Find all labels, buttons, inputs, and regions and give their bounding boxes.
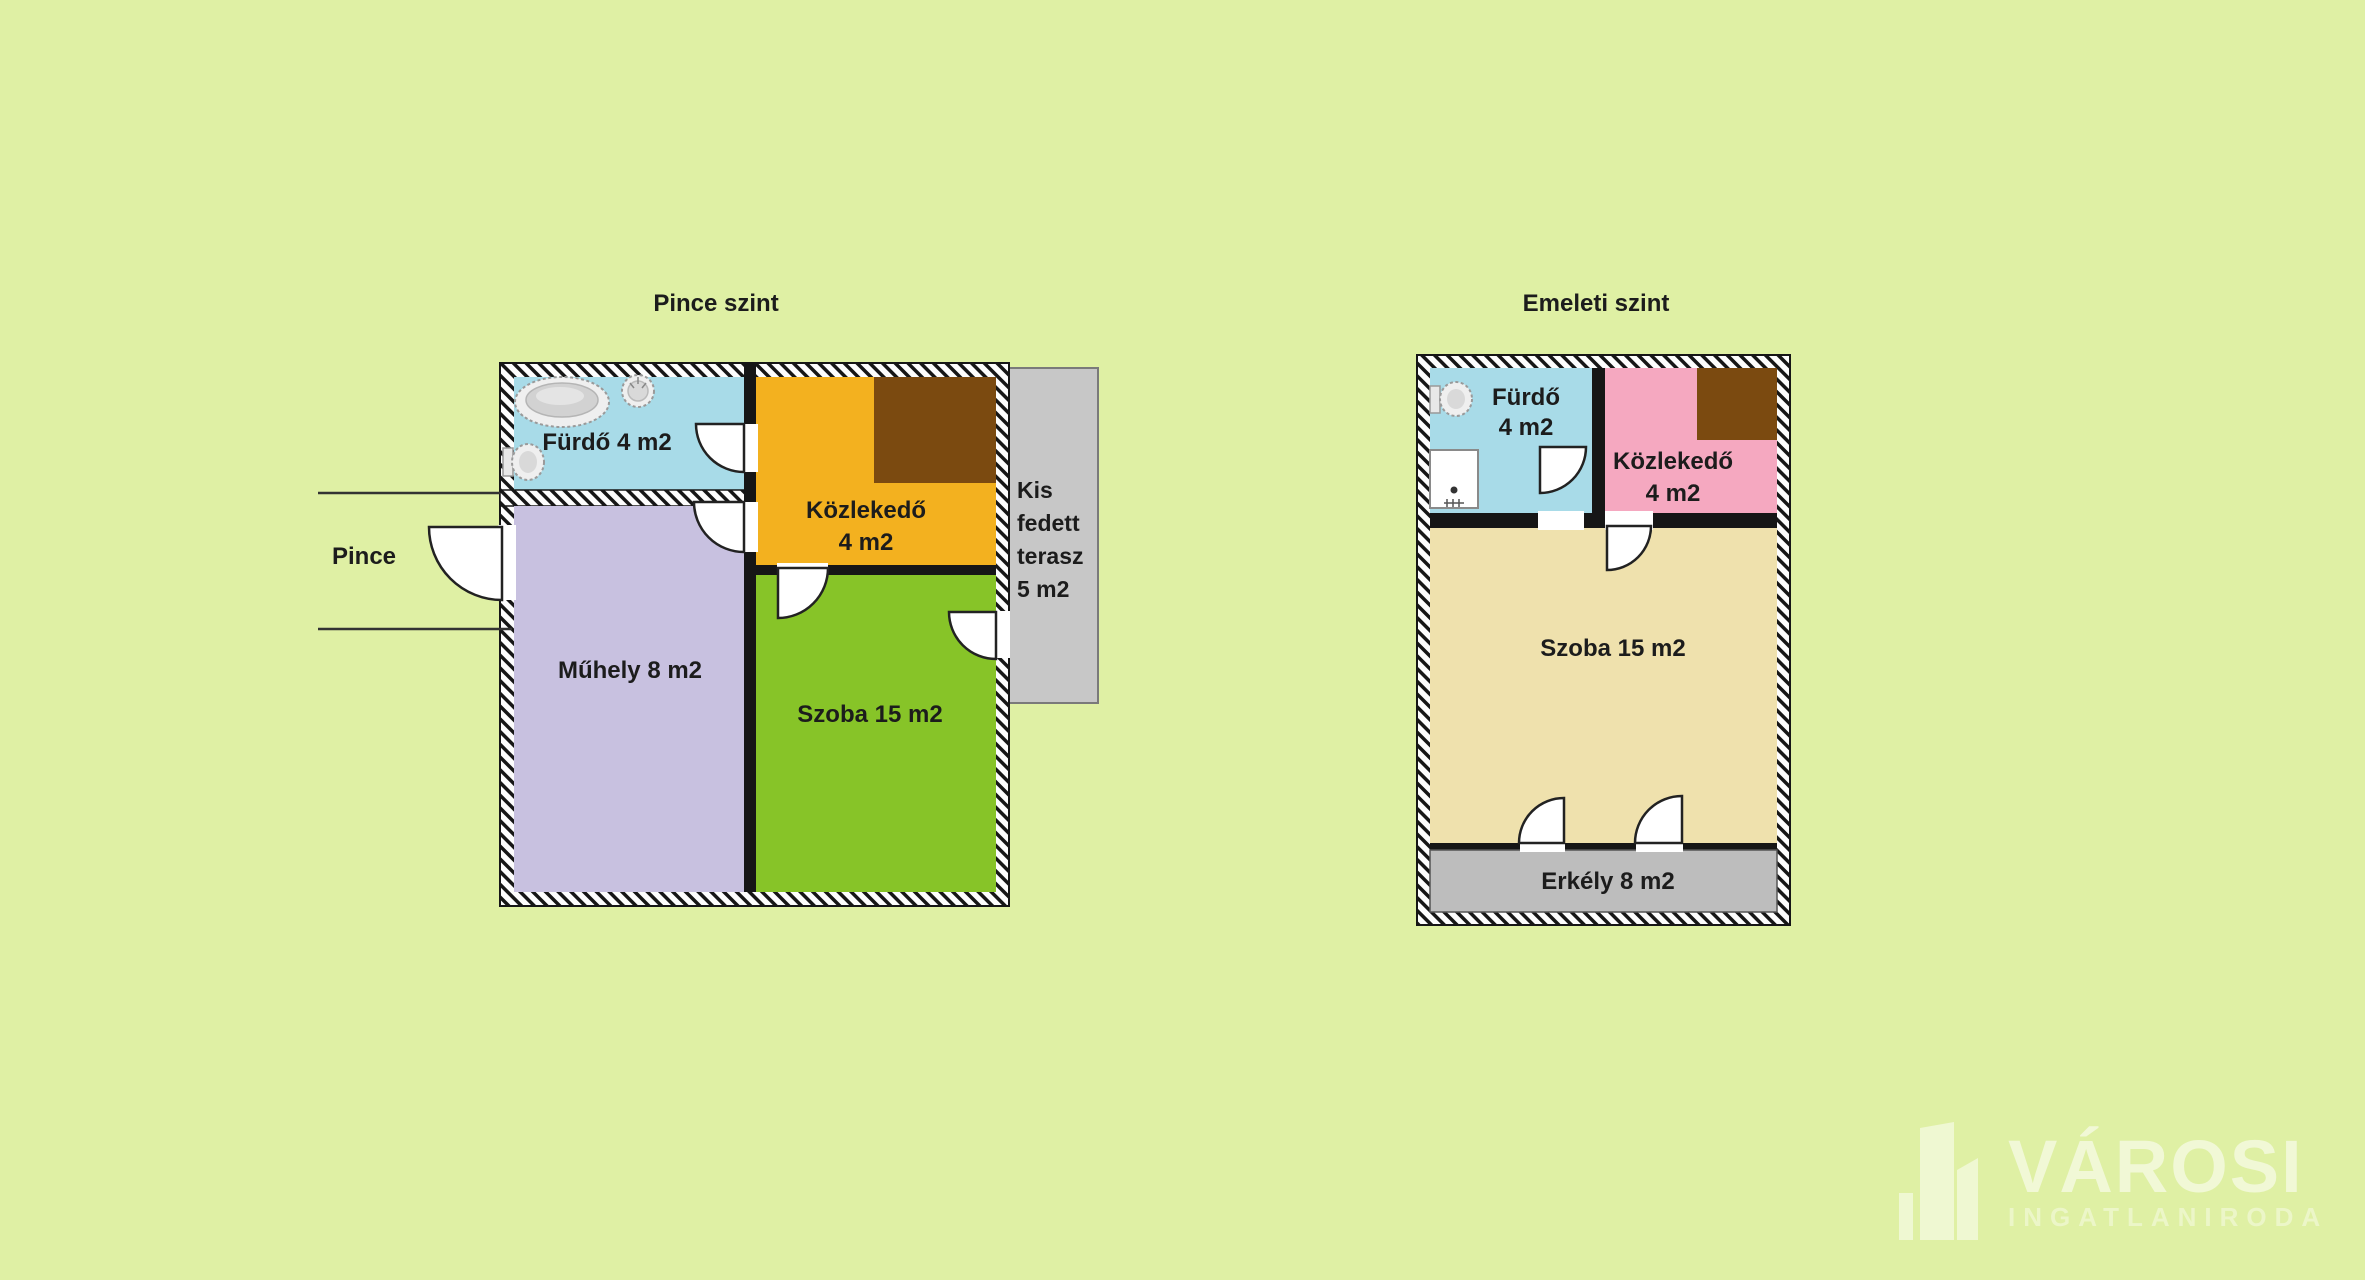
upper-bathroom-door-opening <box>1538 511 1584 530</box>
upper-room-area <box>1430 528 1777 843</box>
bathtub-icon <box>515 377 609 427</box>
upper-bathroom-label: Fürdő <box>1492 384 1560 411</box>
upper-title: Emeleti szint <box>1523 290 1670 317</box>
basement-hallway-label: Közlekedő <box>806 497 926 524</box>
basement-workshop-area <box>514 506 744 892</box>
upper-room-label: Szoba 15 m2 <box>1540 635 1685 662</box>
basement-floorplan: Pince szint Kis fedett terasz 5 m2 <box>318 290 1098 906</box>
terrace-label-line2: fedett <box>1017 510 1080 536</box>
floorplan-canvas: Pince szint Kis fedett terasz 5 m2 <box>0 0 2365 1280</box>
sink-icon <box>622 375 654 407</box>
terrace-label-line4: 5 m2 <box>1017 576 1069 602</box>
room-balcony-wall <box>1430 843 1777 850</box>
shower-icon <box>1430 450 1478 508</box>
upper-hallway-label: Közlekedő <box>1613 448 1733 475</box>
upper-toilet-icon <box>1430 382 1472 416</box>
balcony-label: Erkély 8 m2 <box>1541 868 1674 895</box>
upper-floorplan: Emeleti szint <box>1417 290 1790 925</box>
basement-title: Pince szint <box>653 290 778 317</box>
basement-stairs-area <box>874 377 996 483</box>
basement-workshop-label: Műhely 8 m2 <box>558 657 702 684</box>
upper-mid-wall <box>1430 513 1777 528</box>
upper-bathroom-hallway-wall <box>1592 368 1605 513</box>
basement-room-label: Szoba 15 m2 <box>797 701 942 728</box>
watermark-logo: VÁROSI INGATLANIRODA <box>1899 1122 2328 1240</box>
toilet-icon <box>503 444 544 480</box>
buildings-icon <box>1899 1122 1978 1240</box>
upper-hallway-area-label: 4 m2 <box>1646 480 1701 507</box>
floorplan-page: { "background_color": "#dff0a4", "baseme… <box>0 0 2365 1280</box>
basement-bathroom-label: Fürdő 4 m2 <box>542 429 671 456</box>
terrace-label-line1: Kis <box>1017 477 1053 503</box>
upper-stairs-area <box>1697 368 1777 440</box>
watermark-subtitle: INGATLANIRODA <box>2008 1202 2328 1232</box>
entrance-label: Pince <box>332 543 396 570</box>
upper-bathroom-area-label: 4 m2 <box>1499 414 1554 441</box>
terrace-label-line3: terasz <box>1017 543 1083 569</box>
basement-hallway-area-label: 4 m2 <box>839 529 894 556</box>
watermark-brand: VÁROSI <box>2008 1125 2304 1208</box>
entrance-door-arc <box>429 527 502 600</box>
